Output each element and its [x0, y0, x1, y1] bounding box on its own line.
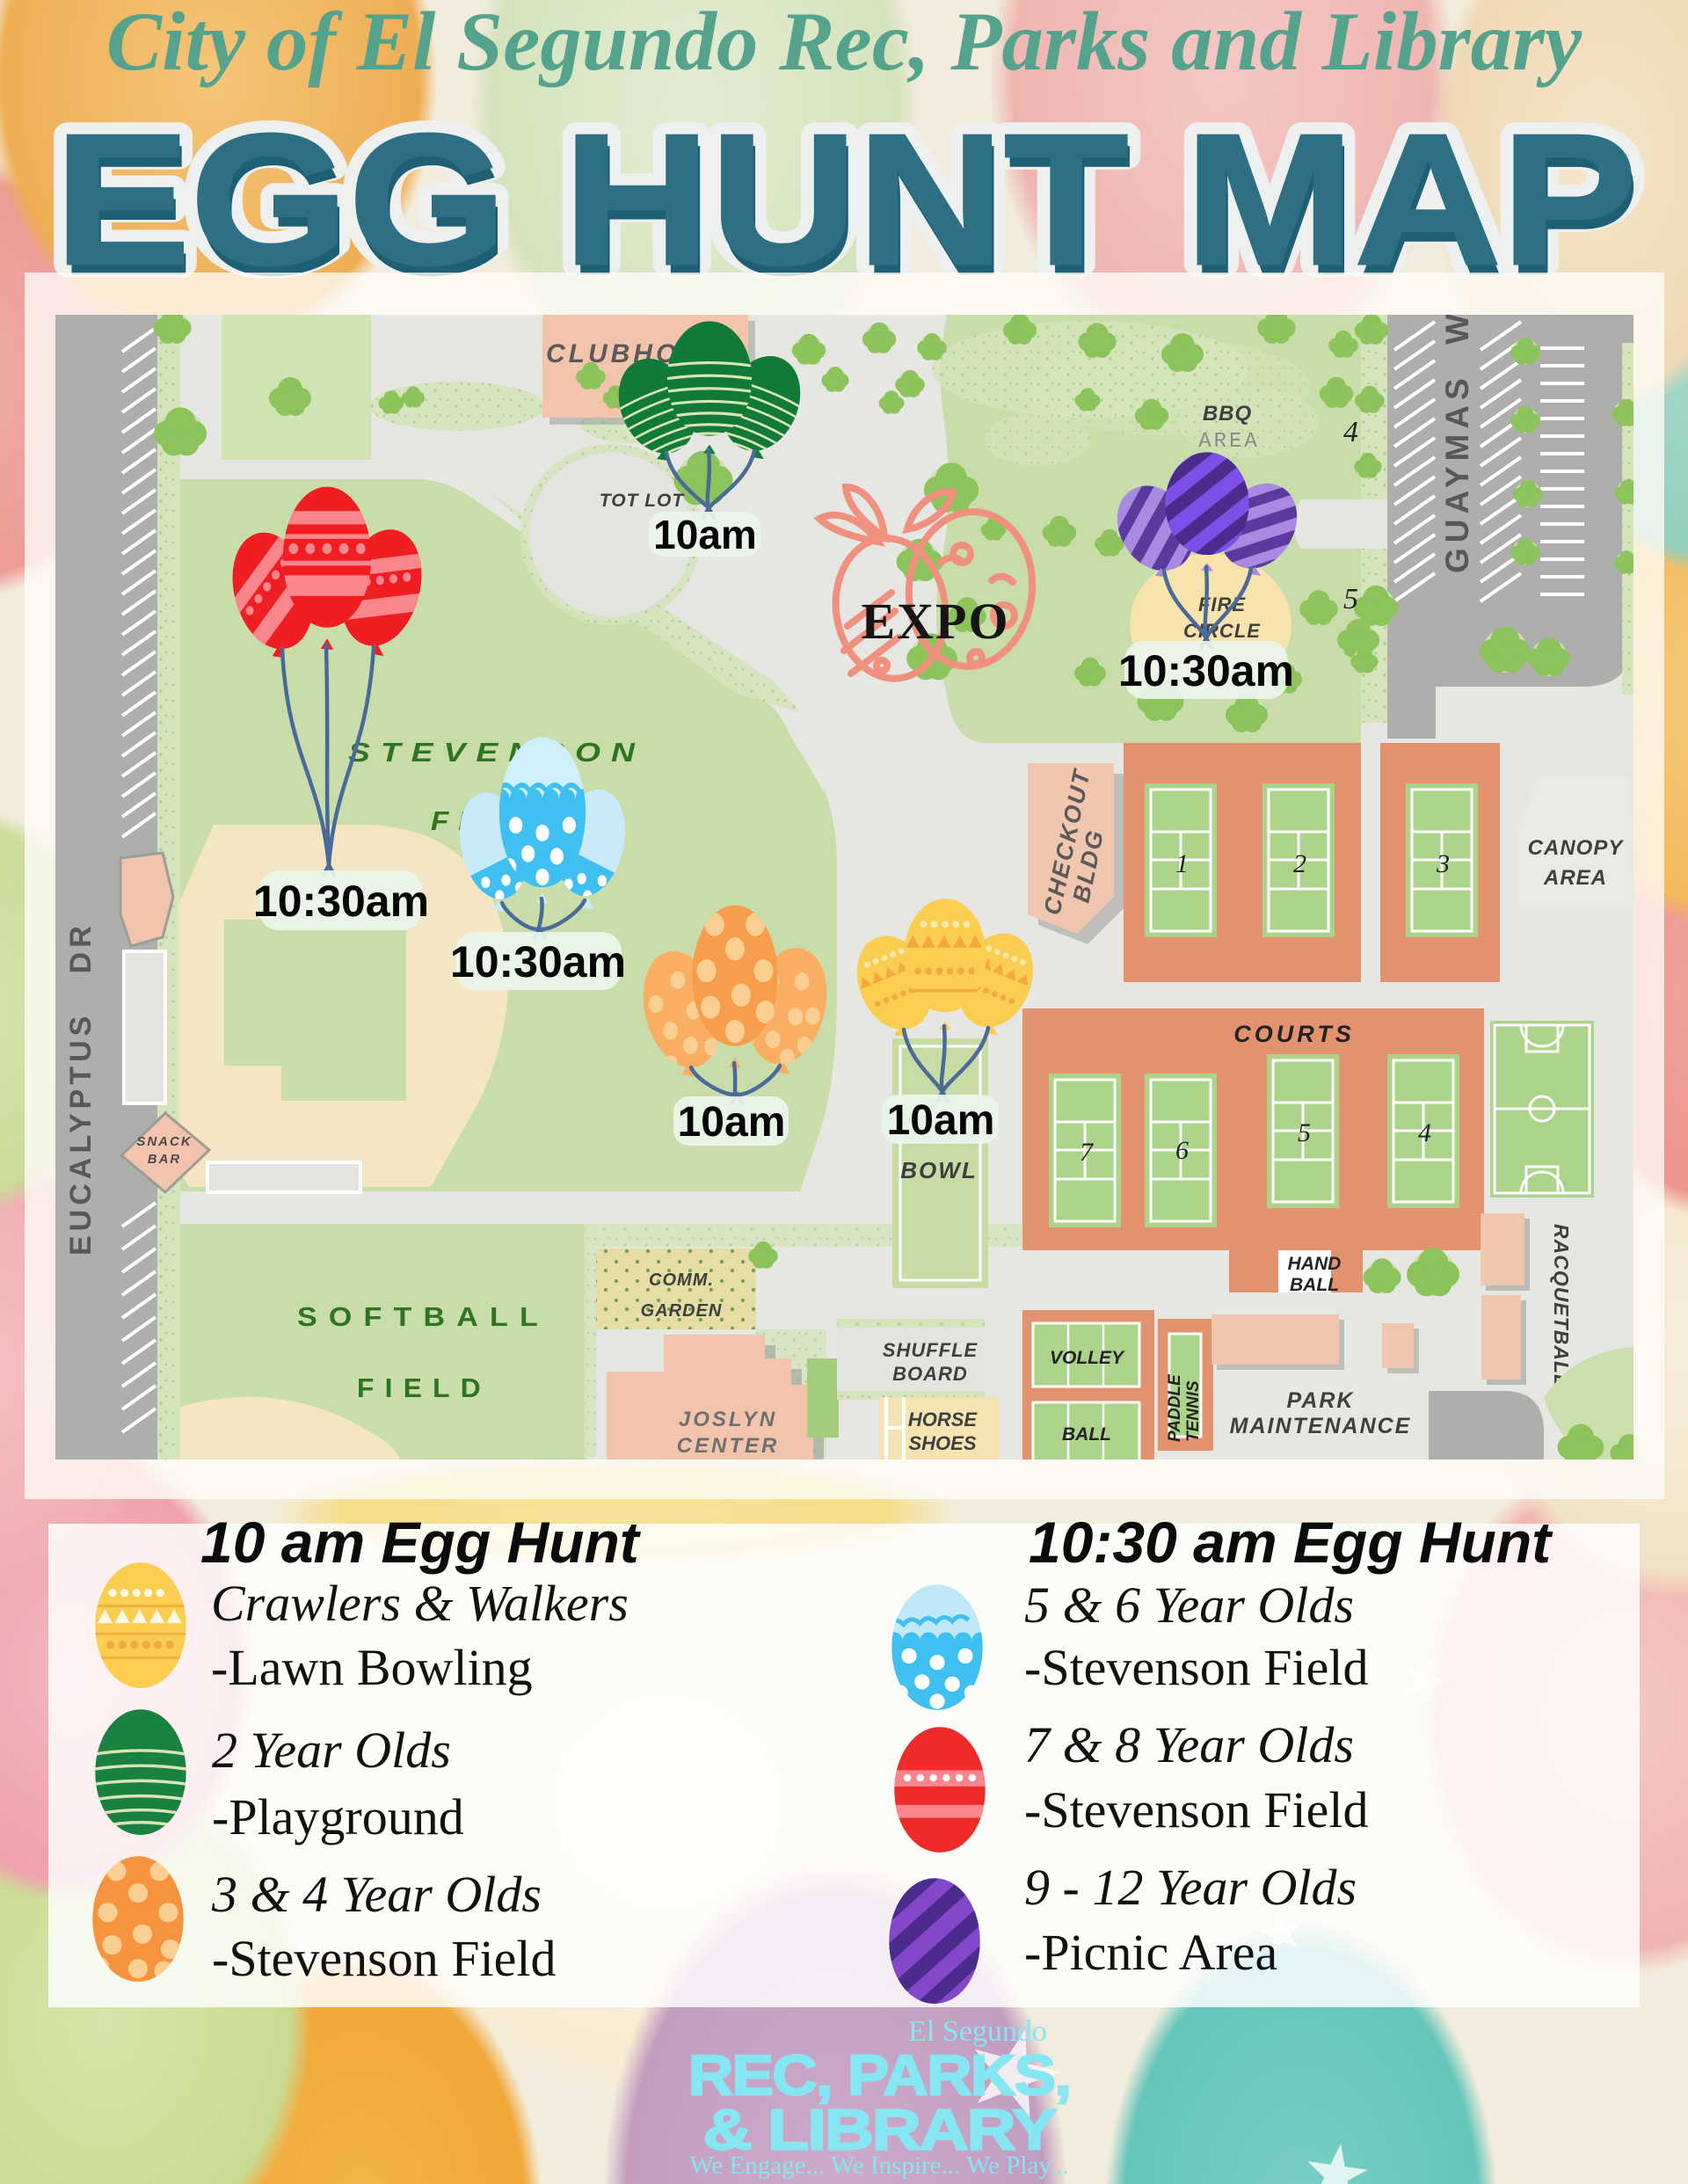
svg-text:EXPO: EXPO — [861, 593, 1009, 650]
svg-text:SHOES: SHOES — [908, 1432, 976, 1454]
svg-text:HAND: HAND — [1288, 1254, 1342, 1274]
svg-text:BALL: BALL — [1062, 1424, 1111, 1445]
svg-text:10:30am: 10:30am — [450, 937, 626, 986]
svg-text:BALL: BALL — [1290, 1275, 1339, 1295]
svg-text:HORSE: HORSE — [908, 1409, 979, 1431]
svg-text:RACQUETBALL: RACQUETBALL — [1550, 1224, 1573, 1387]
svg-text:JOSLYN: JOSLYN — [679, 1408, 777, 1431]
svg-text:EUCALYPTUS DR: EUCALYPTUS DR — [64, 921, 98, 1256]
svg-text:TOT LOT: TOT LOT — [600, 491, 686, 511]
svg-text:GARDEN: GARDEN — [641, 1301, 723, 1321]
svg-text:COURTS: COURTS — [1233, 1021, 1355, 1047]
svg-text:BAR: BAR — [148, 1152, 182, 1167]
svg-text:6: 6 — [1175, 1136, 1189, 1165]
svg-text:5: 5 — [1343, 583, 1358, 615]
svg-text:10:30am: 10:30am — [1118, 646, 1294, 695]
svg-text:COMM.: COMM. — [649, 1270, 714, 1290]
svg-text:TENNIS: TENNIS — [1184, 1380, 1203, 1442]
svg-text:BOARD: BOARD — [892, 1363, 968, 1385]
svg-text:7: 7 — [1080, 1138, 1095, 1167]
svg-text:BBQ: BBQ — [1203, 402, 1252, 426]
svg-text:AREA: AREA — [1198, 430, 1260, 454]
svg-text:BOWL: BOWL — [900, 1157, 977, 1183]
svg-text:2: 2 — [1293, 849, 1306, 878]
svg-text:SHUFFLE: SHUFFLE — [883, 1339, 979, 1361]
svg-text:AREA: AREA — [1543, 866, 1607, 890]
svg-text:GUAYMAS WAY: GUAYMAS WAY — [1439, 273, 1475, 573]
svg-text:10:30am: 10:30am — [253, 877, 429, 926]
svg-text:1: 1 — [1175, 849, 1189, 878]
svg-text:PADDLE: PADDLE — [1166, 1373, 1184, 1442]
svg-text:5: 5 — [1298, 1118, 1311, 1147]
svg-text:SNACK: SNACK — [136, 1134, 192, 1149]
svg-text:10am: 10am — [678, 1099, 786, 1146]
svg-text:FIELD: FIELD — [357, 1372, 491, 1403]
svg-text:3: 3 — [1436, 849, 1450, 878]
svg-text:10am: 10am — [653, 512, 757, 557]
svg-text:4: 4 — [1418, 1118, 1431, 1147]
svg-text:4: 4 — [1343, 416, 1358, 448]
svg-text:PARK: PARK — [1287, 1388, 1355, 1413]
svg-text:VOLLEY: VOLLEY — [1050, 1348, 1125, 1368]
svg-text:CANOPY: CANOPY — [1528, 836, 1625, 860]
svg-text:10am: 10am — [887, 1097, 995, 1144]
svg-text:MAINTENANCE: MAINTENANCE — [1230, 1414, 1412, 1438]
svg-text:SOFTBALL: SOFTBALL — [297, 1301, 549, 1332]
svg-text:STEVENSON: STEVENSON — [348, 737, 645, 768]
svg-text:CENTER: CENTER — [677, 1434, 780, 1458]
